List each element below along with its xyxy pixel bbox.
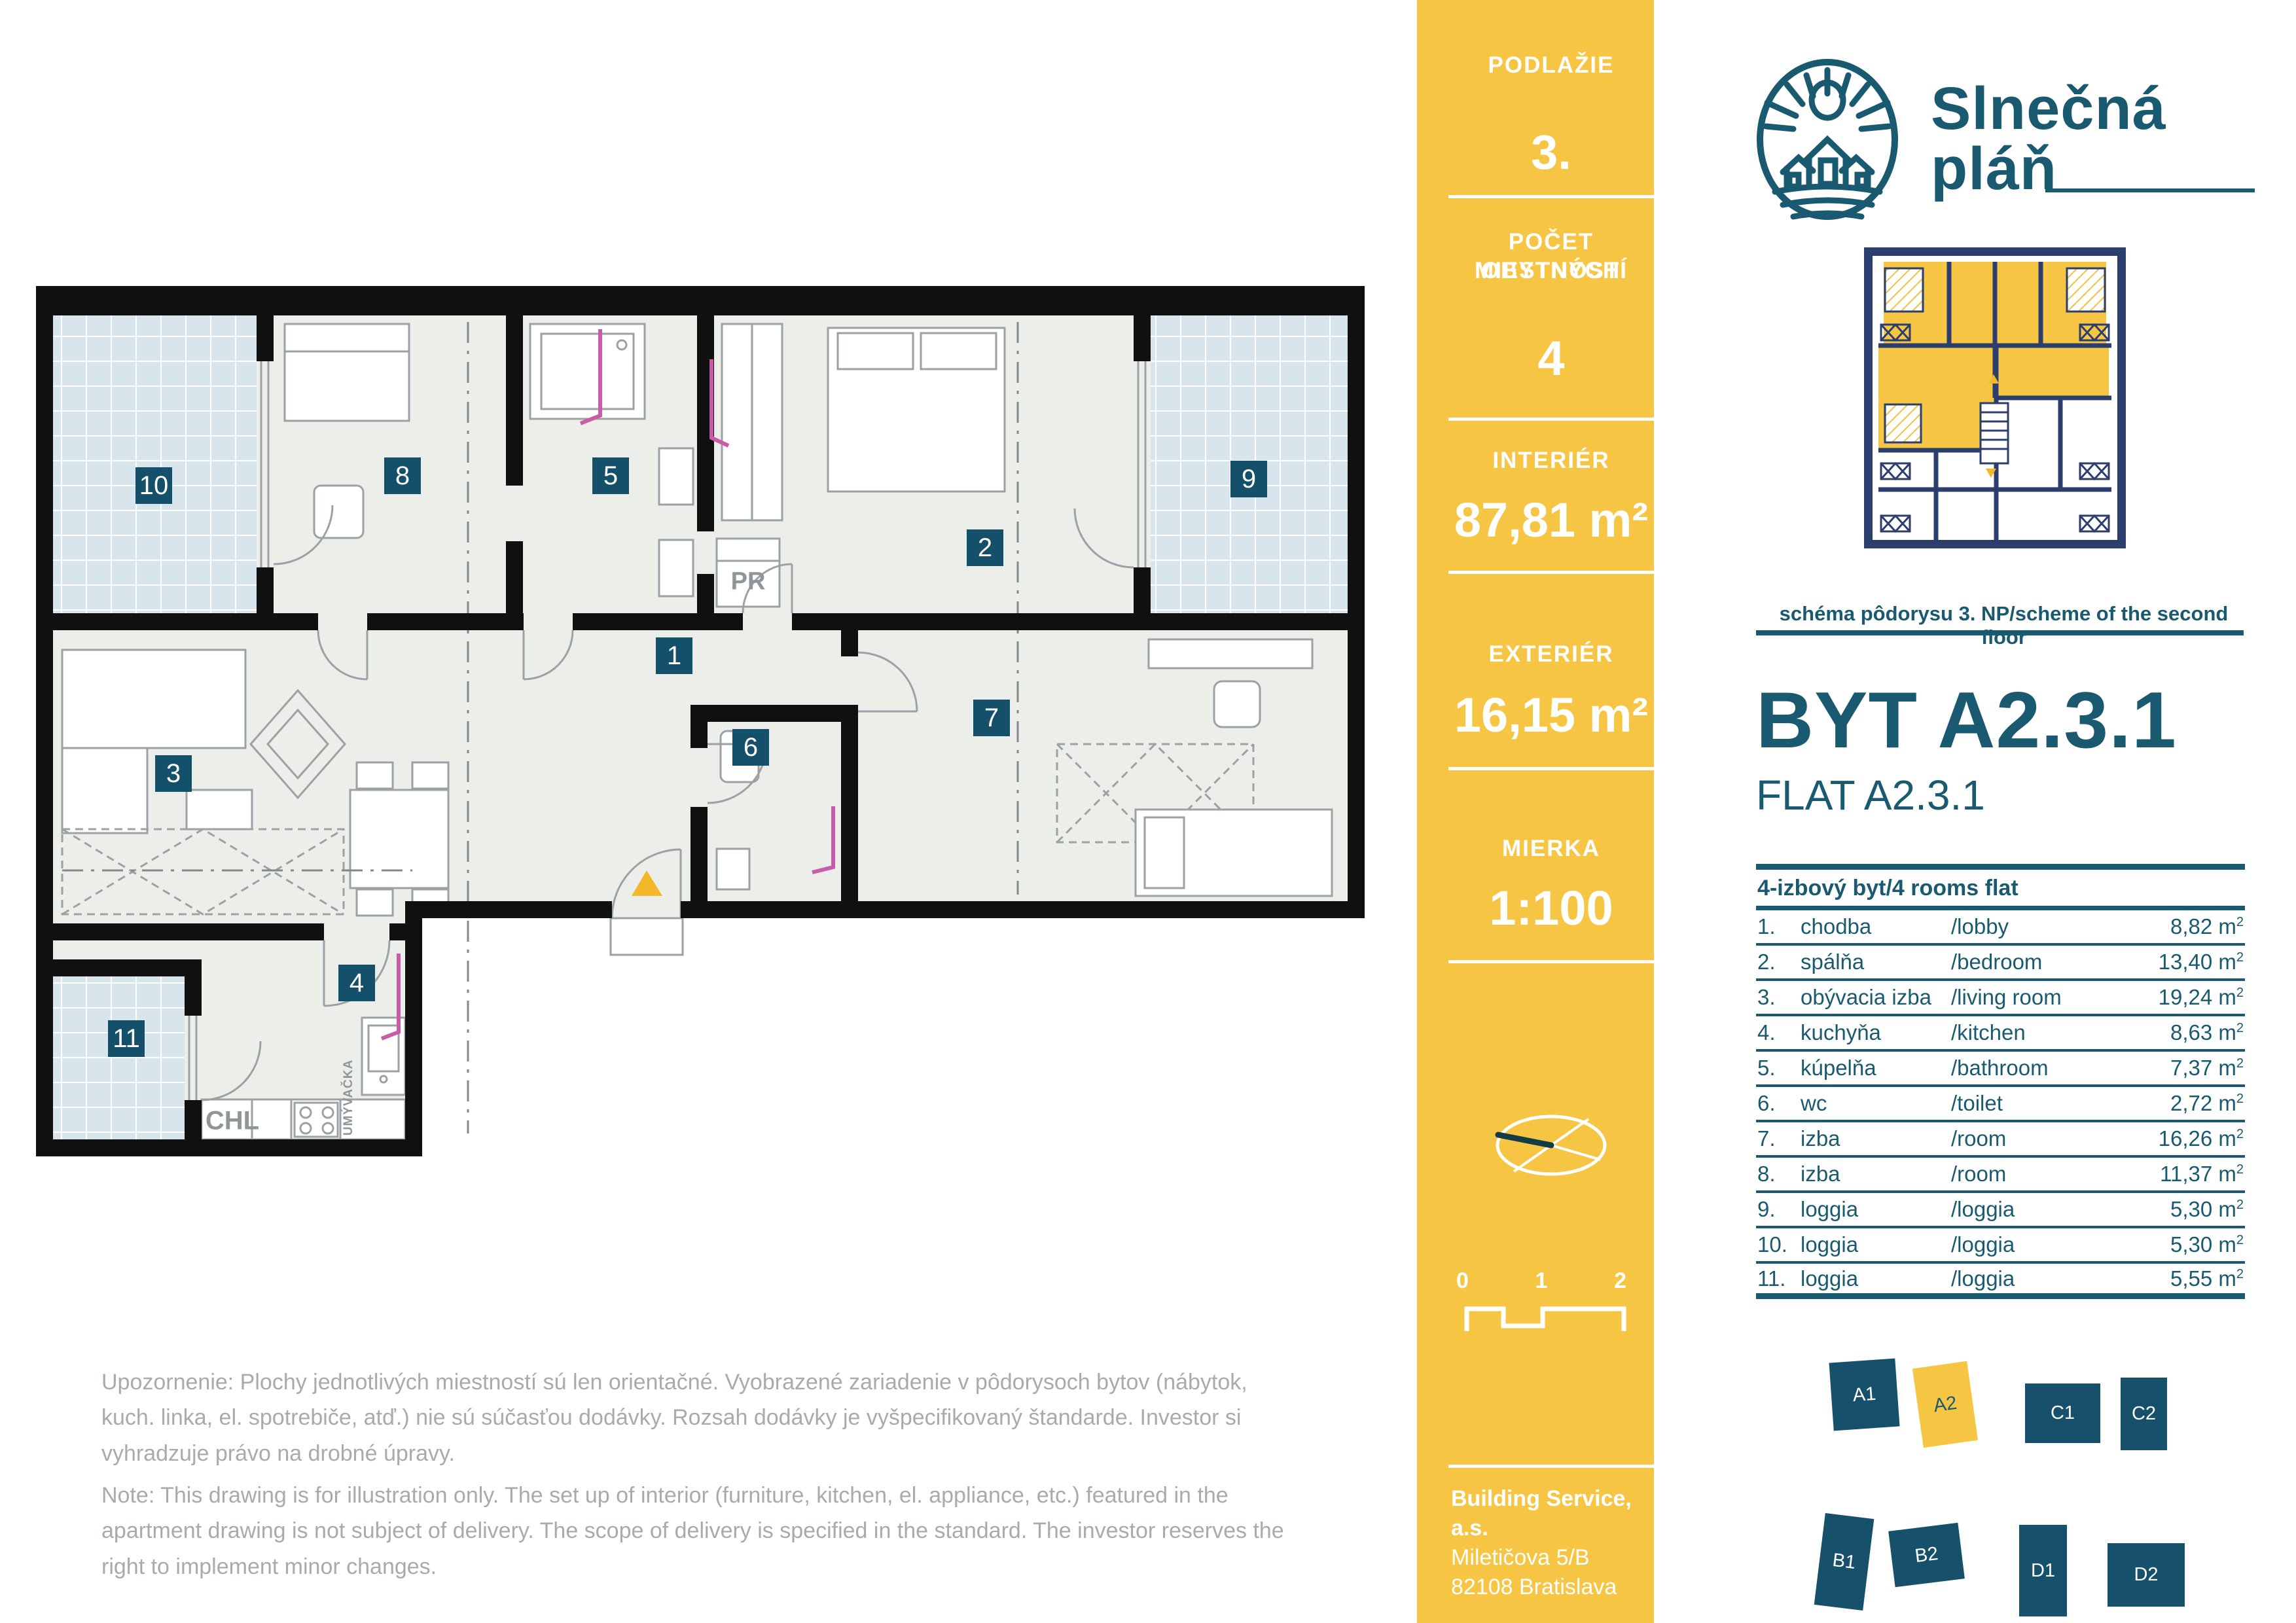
scheme-caption-rule bbox=[1756, 630, 2244, 635]
row-name-sk: loggia bbox=[1801, 1197, 1951, 1222]
floor-value: 3. bbox=[1448, 124, 1654, 180]
flat-title-en: FLAT A2.3.1 bbox=[1756, 771, 1985, 819]
row-name-sk: izba bbox=[1801, 1162, 1951, 1186]
floor-plan: 1234567891011 PR CHL UMÝVAČKA bbox=[36, 286, 1365, 1156]
developer-address: Building Service, a.s. Miletičova 5/B 82… bbox=[1451, 1484, 1647, 1602]
floor-scheme-thumbnail bbox=[1864, 247, 2126, 548]
row-name-en: /room bbox=[1951, 1162, 2160, 1186]
room-number-badge: 6 bbox=[732, 729, 769, 766]
row-number: 9. bbox=[1756, 1197, 1801, 1222]
floor-label: PODLAŽIE bbox=[1448, 51, 1654, 80]
row-number: 3. bbox=[1756, 985, 1801, 1010]
row-name-en: /room bbox=[1951, 1126, 2159, 1151]
interior-value: 87,81 m² bbox=[1448, 492, 1654, 548]
room-number-badge: 8 bbox=[384, 457, 421, 494]
room-table-header: 4-izbový byt/4 rooms flat bbox=[1756, 870, 2245, 910]
row-name-en: /living room bbox=[1951, 985, 2159, 1010]
table-row: 5.kúpelňa/bathroom7,37 m2 bbox=[1756, 1052, 2245, 1087]
room-number-badge: 2 bbox=[967, 529, 1003, 566]
table-row: 10.loggia/loggia5,30 m2 bbox=[1756, 1228, 2245, 1264]
brand-rule bbox=[2045, 188, 2255, 192]
row-name-en: /loggia bbox=[1951, 1266, 2170, 1291]
row-area: 11,37 m2 bbox=[2160, 1162, 2245, 1186]
room-area-table: 4-izbový byt/4 rooms flat 1.chodba/lobby… bbox=[1756, 864, 2245, 1299]
site-block-D1: D1 bbox=[2019, 1525, 2067, 1616]
row-name-sk: izba bbox=[1801, 1126, 1951, 1151]
scale-label: MIERKA bbox=[1448, 834, 1654, 863]
scale-value: 1:100 bbox=[1448, 880, 1654, 936]
row-number: 10. bbox=[1756, 1232, 1801, 1257]
site-block-D2: D2 bbox=[2108, 1543, 2185, 1607]
stats-side-band: PODLAŽIE 3. POČET OBYTNÝCH MIESTNOSTÍ 4 … bbox=[1417, 0, 1654, 1623]
room-number-badge: 1 bbox=[656, 637, 692, 674]
row-area: 5,55 m2 bbox=[2170, 1266, 2245, 1291]
scheme-caption: schéma pôdorysu 3. NP/scheme of the seco… bbox=[1756, 602, 2251, 649]
row-area: 13,40 m2 bbox=[2159, 950, 2245, 974]
exterior-label: EXTERIÉR bbox=[1448, 640, 1654, 669]
room-number-badge: 4 bbox=[338, 965, 375, 1001]
row-area: 16,26 m2 bbox=[2159, 1126, 2245, 1151]
row-area: 19,24 m2 bbox=[2159, 985, 2245, 1010]
floor-plan-drawing bbox=[36, 286, 1365, 1156]
site-block-B1: B1 bbox=[1814, 1513, 1874, 1611]
row-number: 11. bbox=[1756, 1266, 1801, 1291]
row-name-sk: loggia bbox=[1801, 1232, 1951, 1257]
site-block-B2: B2 bbox=[1888, 1523, 1965, 1587]
north-compass-icon bbox=[1489, 1106, 1613, 1185]
room-number-badge: 3 bbox=[155, 755, 192, 792]
row-name-sk: obývacia izba bbox=[1801, 985, 1951, 1010]
room-number-badge: 10 bbox=[135, 467, 172, 504]
interior-label: INTERIÉR bbox=[1448, 446, 1654, 475]
label-chl: CHL bbox=[206, 1107, 259, 1136]
table-row: 9.loggia/loggia5,30 m2 bbox=[1756, 1193, 2245, 1228]
row-name-sk: kúpelňa bbox=[1801, 1056, 1951, 1080]
table-row: 7.izba/room16,26 m2 bbox=[1756, 1122, 2245, 1158]
row-number: 6. bbox=[1756, 1091, 1801, 1116]
table-row: 4.kuchyňa/kitchen8,63 m2 bbox=[1756, 1016, 2245, 1052]
row-number: 8. bbox=[1756, 1162, 1801, 1186]
row-name-en: /loggia bbox=[1951, 1232, 2170, 1257]
rooms-label-2: MIESTNOSTÍ bbox=[1448, 257, 1654, 285]
row-name-en: /bedroom bbox=[1951, 950, 2159, 974]
room-number-badge: 9 bbox=[1230, 461, 1267, 497]
table-row: 3.obývacia izba/living room19,24 m2 bbox=[1756, 981, 2245, 1016]
row-number: 5. bbox=[1756, 1056, 1801, 1080]
label-umyvacka: UMÝVAČKA bbox=[342, 1060, 356, 1135]
table-row: 11.loggia/loggia5,55 m2 bbox=[1756, 1264, 2245, 1299]
disclaimer-en: Note: This drawing is for illustration o… bbox=[101, 1478, 1299, 1584]
row-area: 8,82 m2 bbox=[2170, 914, 2245, 939]
table-row: 6.wc/toilet2,72 m2 bbox=[1756, 1087, 2245, 1122]
row-number: 1. bbox=[1756, 914, 1801, 939]
row-area: 5,30 m2 bbox=[2170, 1232, 2245, 1257]
exterior-value: 16,15 m² bbox=[1448, 687, 1654, 743]
row-area: 8,63 m2 bbox=[2170, 1020, 2245, 1045]
row-area: 2,72 m2 bbox=[2170, 1091, 2245, 1116]
site-block-C2: C2 bbox=[2121, 1378, 2167, 1450]
table-row: 1.chodba/lobby8,82 m2 bbox=[1756, 910, 2245, 946]
row-name-en: /bathroom bbox=[1951, 1056, 2170, 1080]
room-number-badge: 11 bbox=[108, 1020, 145, 1057]
rooms-value: 4 bbox=[1448, 330, 1654, 386]
row-name-sk: chodba bbox=[1801, 914, 1951, 939]
room-number-badge: 7 bbox=[973, 700, 1010, 736]
row-area: 7,37 m2 bbox=[2170, 1056, 2245, 1080]
flat-title-sk: BYT A2.3.1 bbox=[1756, 674, 2177, 766]
disclaimer-sk: Upozornenie: Plochy jednotlivých miestno… bbox=[101, 1364, 1299, 1471]
site-block-A2: A2 bbox=[1912, 1361, 1978, 1448]
row-number: 4. bbox=[1756, 1020, 1801, 1045]
slnecna-plan-logo-icon bbox=[1749, 56, 1912, 226]
loggia-10-area bbox=[53, 315, 257, 613]
row-name-sk: wc bbox=[1801, 1091, 1951, 1116]
row-number: 2. bbox=[1756, 950, 1801, 974]
brand-wordmark: Slnečná pláň bbox=[1931, 79, 2166, 199]
scalebar-icon bbox=[1464, 1304, 1626, 1335]
site-block-A1: A1 bbox=[1829, 1359, 1899, 1431]
row-name-en: /kitchen bbox=[1951, 1020, 2170, 1045]
row-name-sk: spálňa bbox=[1801, 950, 1951, 974]
row-number: 7. bbox=[1756, 1126, 1801, 1151]
scalebar-labels: 012 bbox=[1456, 1268, 1626, 1294]
table-row: 8.izba/room11,37 m2 bbox=[1756, 1158, 2245, 1193]
site-block-C1: C1 bbox=[2025, 1383, 2100, 1443]
loggia-11-area bbox=[53, 976, 185, 1139]
row-area: 5,30 m2 bbox=[2170, 1197, 2245, 1222]
label-pr: PR bbox=[731, 568, 766, 596]
row-name-en: /loggia bbox=[1951, 1197, 2170, 1222]
row-name-en: /lobby bbox=[1951, 914, 2170, 939]
row-name-sk: kuchyňa bbox=[1801, 1020, 1951, 1045]
row-name-en: /toilet bbox=[1951, 1091, 2170, 1116]
table-row: 2.spálňa/bedroom13,40 m2 bbox=[1756, 946, 2245, 981]
row-name-sk: loggia bbox=[1801, 1266, 1951, 1291]
room-number-badge: 5 bbox=[592, 457, 629, 494]
